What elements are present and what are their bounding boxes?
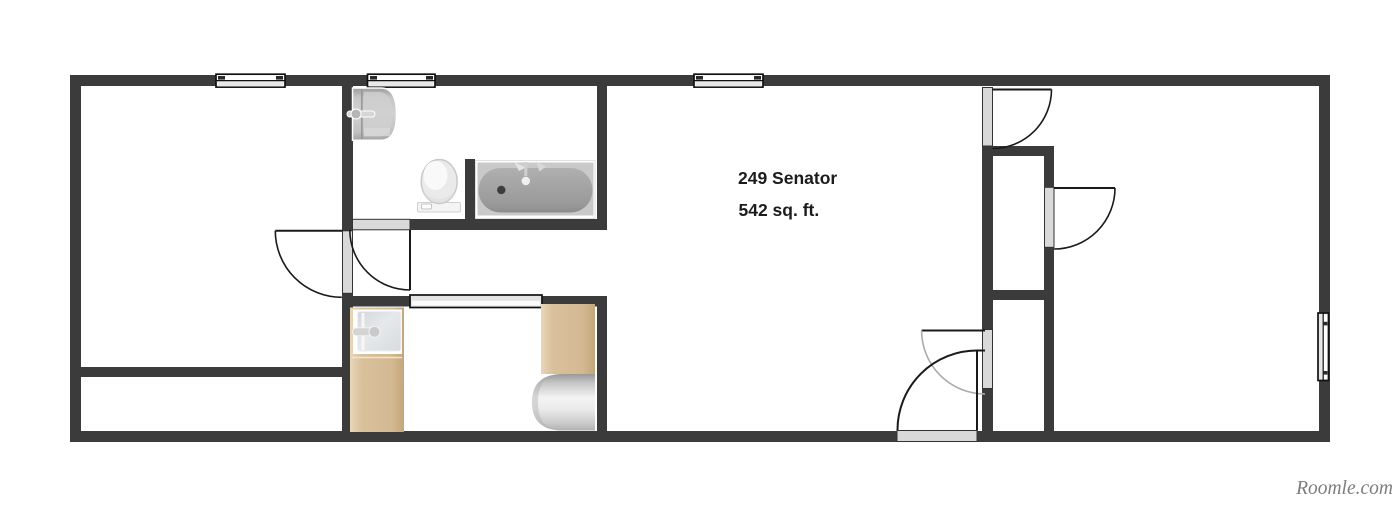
svg-text:Roomle.com: Roomle.com bbox=[1295, 478, 1393, 499]
svg-text:249 Senator: 249 Senator bbox=[738, 168, 837, 188]
svg-text:542 sq. ft.: 542 sq. ft. bbox=[739, 200, 820, 220]
